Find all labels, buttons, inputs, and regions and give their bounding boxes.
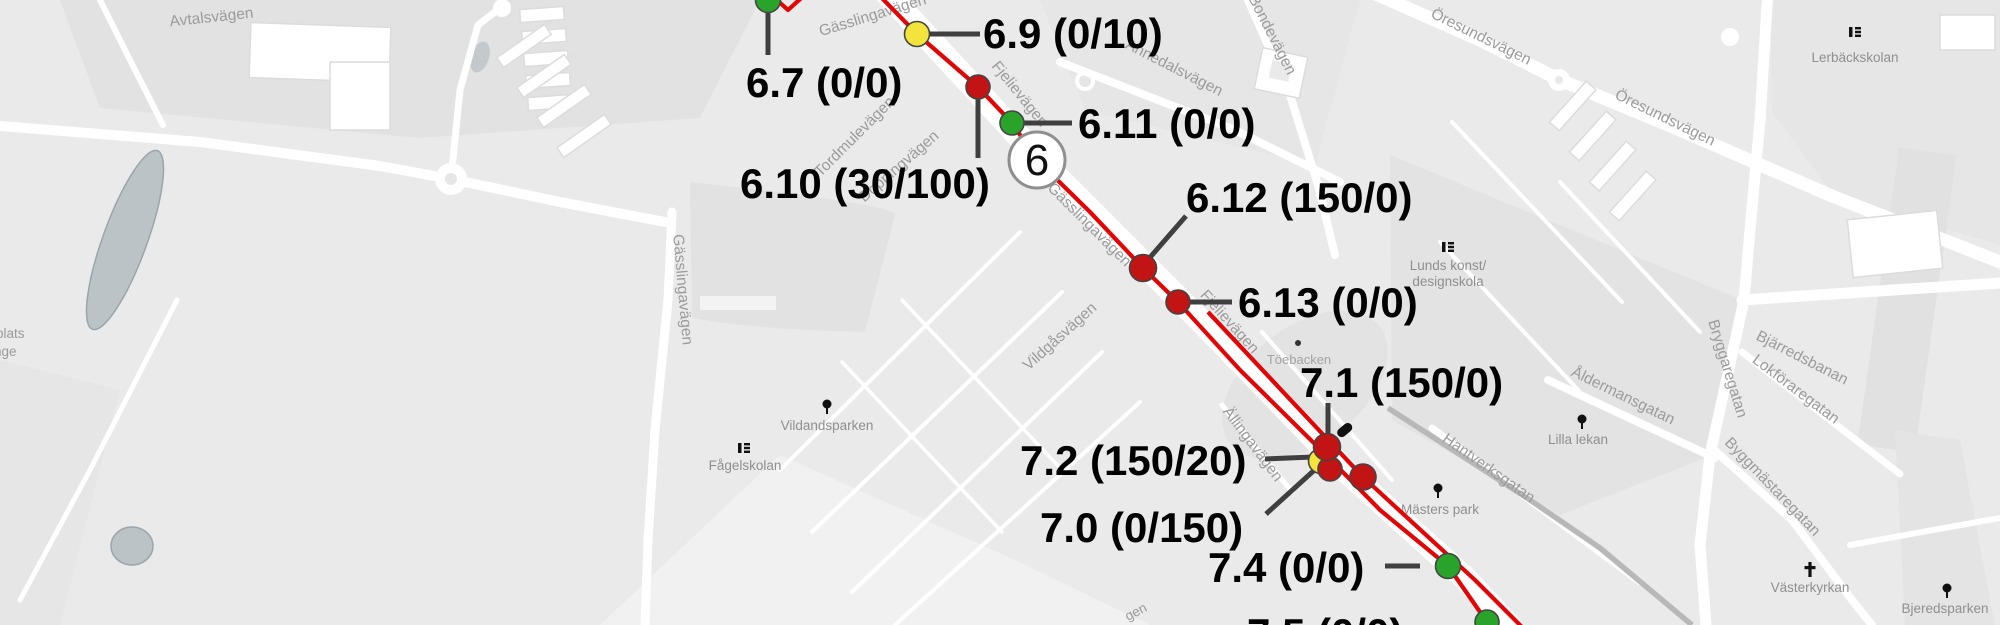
marker-label-6.12: 6.12 (150/0) [1186,174,1413,221]
marker-label-7.4: 7.4 (0/0) [1208,544,1364,591]
school-icon [1849,27,1861,37]
marker-dot-extra[interactable] [1350,464,1376,490]
street-label-fragment: nge [0,344,17,359]
poi-label: Mästers park [1401,502,1479,517]
marker-label-6.13: 6.13 (0/0) [1238,279,1418,326]
marker-dot-6.9[interactable] [905,22,930,47]
marker-label-6.10: 6.10 (30/100) [740,160,990,207]
marker-dot-6.13[interactable] [1166,290,1190,314]
street-label-fragment: plats [0,326,25,341]
marker-label-7.5: 7.5 (0/0) [1247,610,1403,625]
marker-label-7.1: 7.1 (150/0) [1300,359,1503,406]
marker-label-6.7: 6.7 (0/0) [746,59,902,106]
poi-label: Västerkyrkan [1771,580,1850,595]
poi-label-line1: Lunds konst/ [1410,258,1487,273]
marker-dot-7.1[interactable] [1314,434,1341,461]
school-icon [738,443,750,453]
poi-label-line2: designskola [1412,274,1484,289]
marker-dot-6.10[interactable] [966,75,990,99]
marker-dot-7.4[interactable] [1436,554,1461,579]
marker-dot-6.11[interactable] [1000,111,1024,135]
school-icon [1442,242,1454,252]
poi-label: Lerbäckskolan [1811,50,1898,65]
marker-label-6.11: 6.11 (0/0) [1078,100,1255,147]
route-badge-number: 6 [1025,136,1049,185]
map-view: Avtalsvägen Gässlingavägen Tordmulevägen… [0,0,2000,625]
poi-label: Lilla lekan [1548,432,1608,447]
poi-label: Vildandsparken [781,418,874,433]
poi-label: Fågelskolan [709,458,782,473]
route-badge[interactable]: 6 [1009,132,1065,188]
map-canvas[interactable]: Avtalsvägen Gässlingavägen Tordmulevägen… [0,0,2000,625]
peak-dot-icon [1295,340,1301,346]
pond [111,527,153,565]
marker-label-6.9: 6.9 (0/10) [983,10,1163,57]
marker-dot-6.12[interactable] [1130,255,1157,282]
marker-label-7.2: 7.2 (150/20) [1020,437,1247,484]
poi-label: Bjeredsparken [1901,601,1988,616]
